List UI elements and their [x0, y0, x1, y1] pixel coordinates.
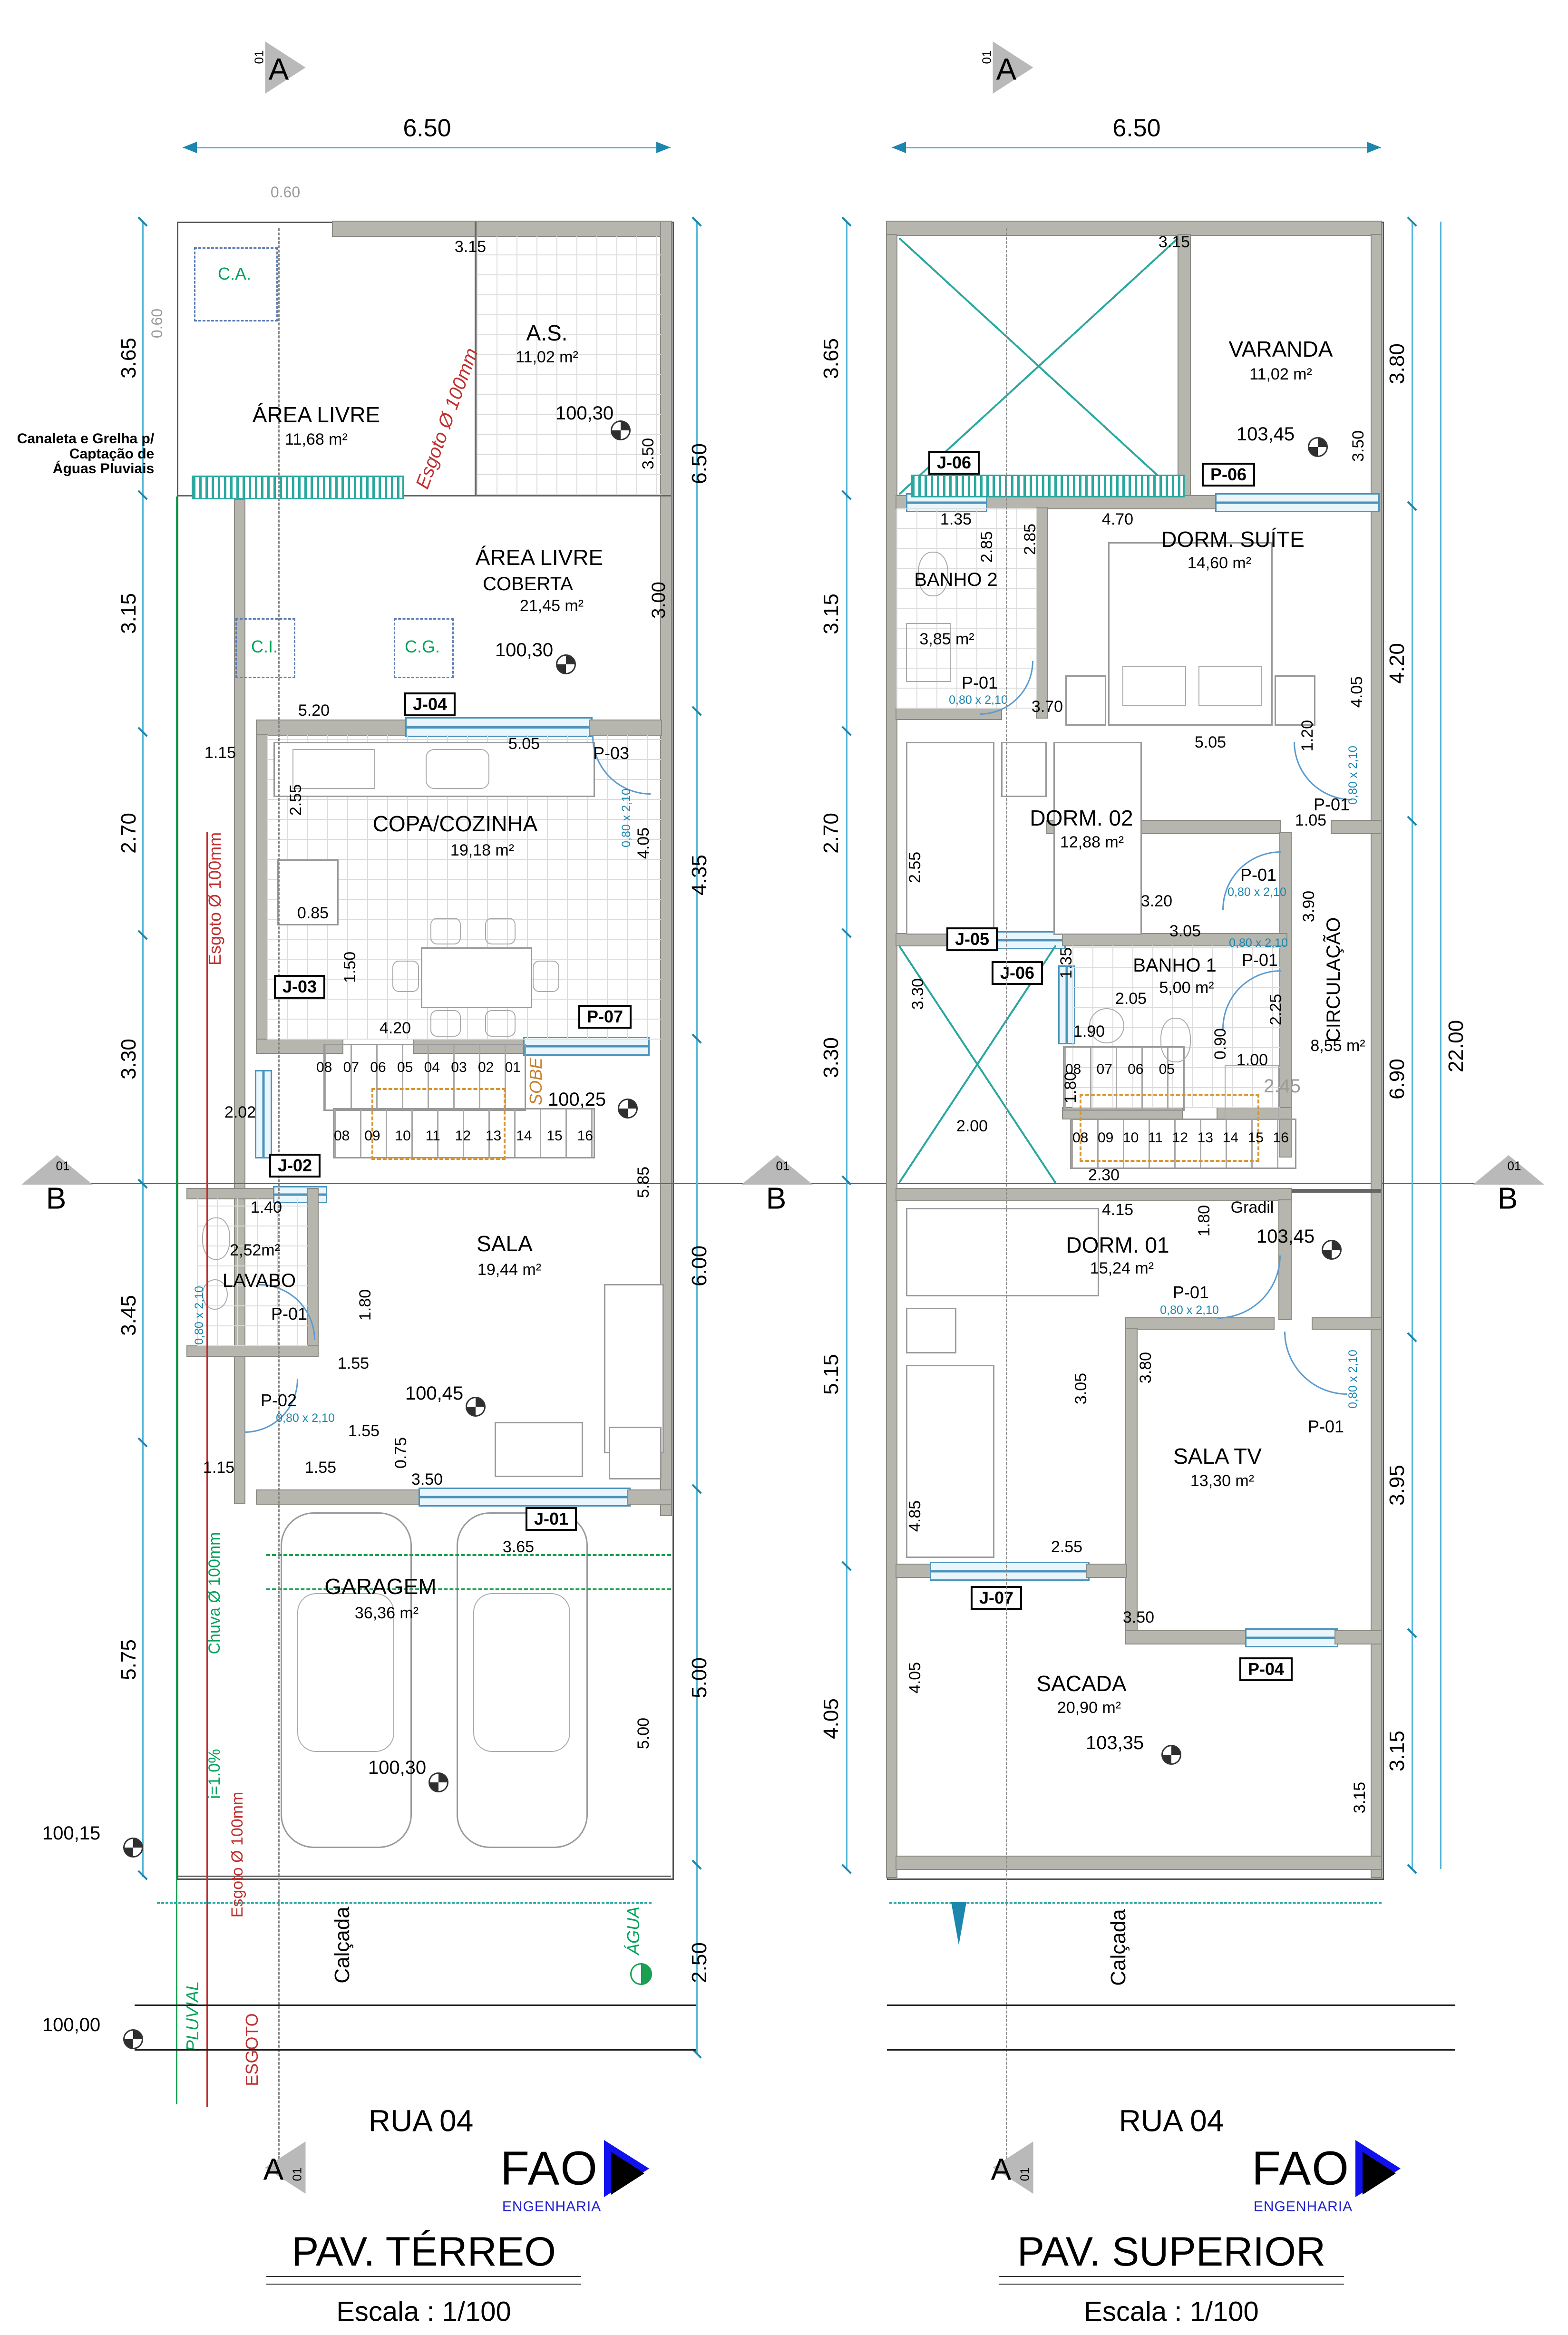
sink — [426, 749, 489, 789]
canaleta-grelha-sup — [911, 475, 1185, 497]
window-P06 — [1215, 493, 1380, 512]
dim-line — [892, 147, 1381, 148]
dim-label: 3.70 — [1032, 699, 1063, 716]
dim-label: 5.85 — [635, 1167, 653, 1198]
nightstand — [1001, 742, 1047, 797]
stair-step-number: 13 — [486, 1128, 501, 1144]
wall — [887, 222, 1381, 235]
dim-chain: 6.90 — [1386, 1059, 1408, 1099]
dim-arrow — [656, 142, 671, 153]
room-label-salatv: SALA TV — [1173, 1445, 1262, 1468]
room-label-banho2: BANHO 2 — [914, 570, 998, 590]
dim-label: 1.15 — [203, 1459, 234, 1477]
level-label: 103,35 — [1086, 1733, 1144, 1753]
dim-label: 0.75 — [393, 1437, 410, 1469]
dim-label: 3.30 — [910, 978, 927, 1010]
window-tag-J05: J-05 — [946, 927, 998, 951]
wall — [1279, 1200, 1291, 1319]
dim-label: 5.05 — [508, 736, 540, 753]
dim-arrow — [183, 142, 197, 153]
door-tag-P01: P-01 — [1242, 951, 1278, 969]
window-tag-J06: J-06 — [928, 451, 980, 475]
lot-front-line — [177, 1876, 671, 1877]
section-marker-index: 01 — [980, 50, 993, 64]
dim-line — [696, 222, 698, 2053]
stair-step-number: 16 — [1273, 1130, 1289, 1146]
dim-label: 3.05 — [1073, 1373, 1090, 1404]
dim-label: 4.15 — [1102, 1202, 1133, 1219]
dim-chain: 5.00 — [689, 1657, 711, 1698]
stair-step-number: 12 — [1172, 1130, 1188, 1146]
level-label: 103,45 — [1256, 1226, 1315, 1246]
section-marker-letter: A — [269, 53, 289, 85]
ca-box — [194, 247, 278, 321]
dim-label: 1.90 — [1073, 1023, 1105, 1041]
ci-label: C.I. — [251, 638, 278, 656]
dim-chain: 3.45 — [118, 1295, 140, 1336]
dim-label: 2.00 — [956, 1118, 988, 1135]
room-area: 8,55 m² — [1310, 1038, 1365, 1055]
nightstand — [1275, 675, 1315, 726]
wall — [333, 222, 671, 236]
dim-label: 1.50 — [342, 952, 359, 983]
stair-step-number: 07 — [343, 1060, 359, 1076]
cg-label: C.G. — [405, 638, 440, 656]
dim-chain: 3.95 — [1386, 1465, 1408, 1506]
stair-numbers-lower: 080910111213141516 — [334, 1128, 593, 1144]
room-area: 11,68 m² — [285, 431, 348, 448]
room-area: 19,44 m² — [477, 1262, 541, 1279]
dim-arrow — [892, 142, 906, 153]
logo-diamond-black-sup — [1363, 2152, 1396, 2195]
drawing-sheet: C.A. 0807060504030201 080910111213141516 — [0, 0, 1568, 2335]
dim-label: 4.20 — [380, 1020, 411, 1037]
wall — [1126, 1318, 1274, 1329]
door-tag-P01: P-01 — [962, 674, 998, 692]
room-label-circulacao: CIRCULAÇÃO — [1324, 917, 1344, 1042]
section-marker-index: 01 — [1508, 1159, 1521, 1172]
street-line — [887, 2049, 1455, 2051]
stair-step-number: 05 — [1159, 1061, 1175, 1078]
room-area: 19,18 m² — [450, 842, 514, 859]
stair-numbers-upper: 0807060504030201 — [316, 1060, 521, 1076]
section-marker-letter: B — [46, 1182, 67, 1214]
dim-chain: 2.70 — [820, 813, 842, 854]
dim-chain: 3.30 — [820, 1037, 842, 1078]
stair-step-number: 11 — [426, 1128, 440, 1144]
door-tag-P04: P-04 — [1239, 1657, 1293, 1681]
chair — [430, 1010, 461, 1037]
logo-text-sup: FAO — [1252, 2144, 1350, 2194]
stair-step-number: 04 — [424, 1060, 440, 1076]
chair — [533, 961, 559, 992]
section-marker-index: 01 — [291, 2168, 303, 2181]
dim-chain: 2.50 — [689, 1942, 711, 1983]
room-label-lavabo: LAVABO — [223, 1271, 296, 1291]
level-symbol — [618, 1099, 638, 1119]
chair — [485, 918, 516, 944]
section-marker-letter: A — [996, 53, 1017, 85]
dim-chain: 6.50 — [689, 443, 711, 484]
room-area: 13,30 m² — [1190, 1473, 1254, 1490]
room-area: 20,90 m² — [1057, 1700, 1121, 1717]
door-tag-P02: P-02 — [261, 1391, 297, 1410]
door-tag-P03: P-03 — [593, 744, 629, 762]
stair-step-number: 07 — [1097, 1061, 1112, 1078]
room-label-garagem: GARAGEM — [324, 1575, 436, 1598]
dim-chain: 3.00 — [649, 582, 669, 619]
nightstand — [906, 1308, 956, 1353]
stair-step-number: 09 — [364, 1128, 380, 1144]
door-size: 0,80 x 2,10 — [1347, 1350, 1359, 1409]
door-tag-P01: P-01 — [271, 1305, 307, 1323]
room-area: 2,52m² — [230, 1242, 280, 1259]
dim-chain: 3.65 — [118, 338, 140, 379]
dim-label: 3.20 — [1141, 893, 1172, 910]
gradil-rail — [1292, 1189, 1381, 1193]
door-size: 0,80 x 2,10 — [1160, 1304, 1219, 1316]
title-underline — [266, 2276, 581, 2277]
window-tag-J02: J-02 — [269, 1154, 321, 1177]
dim-line — [1412, 222, 1413, 1869]
esgoto-label: Esgoto Ø 100mm — [206, 832, 224, 965]
wall — [1313, 1318, 1381, 1329]
window-J03 — [255, 1070, 272, 1158]
dim-label: 5.00 — [635, 1718, 653, 1749]
dim-chain: 6.00 — [689, 1245, 711, 1286]
window-tag-J03: J-03 — [274, 975, 325, 999]
wall — [187, 1189, 273, 1198]
wall — [1178, 235, 1190, 496]
door-size: 0,80 x 2,10 — [949, 694, 1008, 706]
wall — [896, 1565, 930, 1577]
room-label-dorm01: DORM. 01 — [1066, 1234, 1169, 1256]
dim-label: 0.85 — [297, 905, 329, 922]
level-symbol — [466, 1397, 486, 1417]
nightstand — [1065, 675, 1106, 726]
dim-label: 3.15 — [1352, 1782, 1369, 1813]
stair-step-number: 02 — [478, 1060, 494, 1076]
scale-label-sup: Escala : 1/100 — [1084, 2298, 1259, 2327]
stair-step-number: 14 — [1223, 1130, 1238, 1146]
level-symbol — [1161, 1745, 1181, 1765]
pillow — [1198, 666, 1262, 706]
dim-line — [183, 147, 671, 148]
canaleta-grelha — [192, 476, 404, 499]
wall — [628, 1490, 671, 1504]
dim-label: 3.65 — [503, 1539, 534, 1556]
street-line — [135, 2004, 696, 2006]
room-label-dorm02: DORM. 02 — [1030, 807, 1133, 829]
single-bed — [906, 742, 994, 935]
window-J01 — [419, 1488, 631, 1507]
stair-dashed-outline — [371, 1088, 506, 1160]
wall — [1126, 1329, 1137, 1631]
level-label: 100,00 — [42, 2015, 100, 2035]
room-area: 3,85 m² — [919, 631, 974, 648]
room-label-sacada: SACADA — [1036, 1672, 1126, 1695]
room-label-coberta-sub: COBERTA — [483, 574, 573, 594]
slope-label: i=1.0% — [206, 1749, 224, 1799]
dim-label: 1.35 — [940, 511, 972, 528]
window-tag-J01: J-01 — [526, 1507, 577, 1531]
level-label: 100,30 — [495, 640, 553, 660]
dim-label: 3.80 — [1138, 1352, 1155, 1383]
door-size: 0,80 x 2,10 — [193, 1286, 205, 1345]
stair-step-number: 06 — [1128, 1061, 1143, 1078]
dim-chain: 5.15 — [820, 1354, 842, 1395]
dim-chain: 4.35 — [689, 855, 711, 895]
chair — [430, 918, 461, 944]
dim-label: 5.20 — [298, 702, 330, 720]
wall — [1126, 1631, 1245, 1644]
dim-label: 3.90 — [1301, 891, 1318, 922]
sobe-label: SOBE — [527, 1058, 545, 1105]
stair-step-number: 09 — [1098, 1130, 1113, 1146]
dim-label: 3.15 — [455, 239, 486, 256]
section-marker-index: 01 — [56, 1159, 70, 1172]
level-symbol — [1322, 1240, 1342, 1260]
room-label-banho1: BANHO 1 — [1133, 955, 1217, 975]
level-label: 100,45 — [405, 1383, 463, 1403]
dim-chain: 22.00 — [1445, 1020, 1467, 1072]
dim-label: 1.80 — [1196, 1205, 1213, 1236]
plan-title-terreo: PAV. TÉRREO — [292, 2230, 556, 2273]
dim-label: 1.20 — [1299, 720, 1316, 751]
title-underline — [999, 2276, 1344, 2277]
dim-label: 6.50 — [403, 116, 451, 142]
stair-step-number: 08 — [334, 1128, 350, 1144]
section-marker-index: 01 — [1018, 2168, 1031, 2181]
level-symbol — [556, 654, 576, 674]
stair-step-number: 15 — [546, 1128, 562, 1144]
room-area: 15,24 m² — [1090, 1260, 1154, 1277]
door-size: 0,80 x 2,10 — [620, 788, 633, 847]
level-label: 103,45 — [1237, 424, 1295, 444]
dim-label: 4.05 — [635, 827, 653, 859]
chuva-dashed — [266, 1554, 671, 1556]
dim-label: 4.85 — [907, 1500, 924, 1532]
window-P07 — [523, 1037, 650, 1056]
level-label: 100,30 — [368, 1758, 426, 1778]
level-label: 100,15 — [42, 1823, 100, 1843]
dim-label: 3.50 — [640, 438, 657, 469]
dining-table — [421, 947, 532, 1008]
room-area: 11,02 m² — [516, 349, 578, 366]
wall — [1332, 821, 1381, 833]
dim-label: 2.55 — [907, 852, 924, 883]
logo-subtext-sup: ENGENHARIA — [1254, 2199, 1353, 2214]
wall — [887, 235, 896, 1877]
agua-symbol — [630, 1963, 652, 1985]
dim-label: 1.05 — [1295, 812, 1326, 829]
street-name-sup: RUA 04 — [1119, 2105, 1224, 2137]
dim-label: 2.85 — [1022, 524, 1039, 555]
dim-label: 2.55 — [288, 784, 305, 816]
dim-label: 2.45 — [1264, 1076, 1301, 1096]
street-name: RUA 04 — [369, 2105, 474, 2137]
dim-label: 1.00 — [1237, 1052, 1268, 1069]
chuva-label: Chuva Ø 100mm — [206, 1532, 224, 1654]
room-label-varanda: VARANDA — [1229, 338, 1333, 360]
section-line-A — [278, 228, 280, 2159]
room-label-as: A.S. — [526, 321, 568, 344]
dim-label: 1.80 — [1062, 1072, 1080, 1103]
level-symbol — [123, 2029, 143, 2049]
street-line — [887, 2004, 1455, 2006]
room-label-sala: SALA — [477, 1232, 533, 1255]
gradil-label: Gradil — [1231, 1199, 1274, 1216]
door-tag-P07: P-07 — [578, 1005, 632, 1029]
door-tag-P01: P-01 — [1240, 866, 1276, 884]
room-label-copa: COPA/COZINHA — [373, 812, 538, 835]
dim-label: 2.05 — [1115, 991, 1147, 1008]
room-label-arealivre: ÁREA LIVRE — [253, 403, 380, 426]
window-tag-J04: J-04 — [404, 692, 456, 716]
pluvial-label: PLUVIAL — [184, 1981, 202, 2052]
dim-label: 5.05 — [1195, 734, 1226, 751]
section-marker-letter: B — [1498, 1182, 1518, 1214]
dim-chain: 3.15 — [820, 593, 842, 634]
room-area: 14,60 m² — [1188, 555, 1251, 572]
agua-label: ÁGUA — [624, 1907, 643, 1955]
title-underline — [999, 2284, 1344, 2285]
stair-step-number: 01 — [505, 1060, 521, 1076]
dim-chain: 3.15 — [1386, 1731, 1408, 1771]
title-underline — [266, 2284, 581, 2285]
door-size: 0,80 x 2,10 — [1229, 937, 1288, 949]
stair-step-number: 13 — [1198, 1130, 1213, 1146]
dim-chain: 5.75 — [118, 1639, 140, 1680]
dim-chain: 3.65 — [820, 338, 842, 379]
window-J07 — [930, 1562, 1090, 1581]
room-area: 5,00 m² — [1159, 980, 1214, 997]
section-marker-letter: A — [991, 2153, 1012, 2185]
chair — [392, 961, 419, 992]
window-J04 — [405, 717, 593, 737]
corner-unit — [609, 1427, 662, 1479]
ca-label: C.A. — [218, 265, 251, 283]
wall — [1087, 1565, 1126, 1577]
stair-step-number: 10 — [1123, 1130, 1139, 1146]
stair-step-number: 16 — [577, 1128, 593, 1144]
chair — [485, 1010, 516, 1037]
dim-label: 3.50 — [411, 1471, 443, 1489]
dim-label: 1.55 — [338, 1355, 369, 1372]
dim-chain: 4.05 — [820, 1698, 842, 1739]
dim-chain: 4.20 — [1386, 643, 1408, 684]
window-P04 — [1245, 1628, 1338, 1647]
dim-label: 1.15 — [205, 745, 236, 762]
window-tag-J06b: J-06 — [992, 961, 1043, 985]
section-line-A-sup — [1006, 228, 1007, 2159]
door-tag-P01: P-01 — [1308, 1418, 1344, 1436]
esgoto-label2: Esgoto Ø 100mm — [229, 1792, 246, 1918]
logo-diamond-black — [611, 2152, 644, 2195]
dim-label: 0.90 — [1212, 1028, 1229, 1060]
dim-label: 1.40 — [251, 1199, 282, 1216]
dim-chain: 3.30 — [118, 1039, 140, 1080]
window-tag-J07: J-07 — [971, 1586, 1022, 1610]
dim-label: 0.60 — [271, 185, 300, 201]
logo-subtext: ENGENHARIA — [502, 2199, 601, 2214]
stair-step-number: 15 — [1248, 1130, 1264, 1146]
door-tag-P01: P-01 — [1173, 1284, 1209, 1302]
stove — [292, 749, 375, 789]
dim-label: 2.30 — [1088, 1167, 1120, 1184]
dim-label: 2.85 — [979, 531, 996, 563]
stair-numbers-lower-sup: 080910111213141516 — [1072, 1130, 1289, 1146]
pillow — [1122, 666, 1186, 706]
logo-text: FAO — [500, 2144, 598, 2194]
dim-chain: 3.80 — [1386, 343, 1408, 384]
room-area: 36,36 m² — [355, 1605, 419, 1622]
wall — [257, 735, 267, 1040]
section-marker-index: 01 — [776, 1159, 790, 1172]
level-symbol — [429, 1772, 448, 1792]
plan-title-superior: PAV. SUPERIOR — [1017, 2230, 1325, 2273]
flow-arrow — [951, 1902, 966, 1945]
scale-label: Escala : 1/100 — [336, 2298, 511, 2327]
dim-label: 0.60 — [149, 309, 166, 338]
section-marker-index: 01 — [253, 50, 265, 64]
tv-rack — [495, 1422, 583, 1477]
canaleta-annotation: Canaleta e Grelha p/ Captação de Águas P… — [17, 431, 154, 477]
dim-label: 1.80 — [357, 1289, 374, 1321]
section-marker-letter: B — [766, 1182, 787, 1214]
dim-label: 6.50 — [1112, 116, 1160, 142]
stair-numbers-upper-sup: 08070605 — [1065, 1061, 1175, 1078]
stair-step-number: 14 — [516, 1128, 532, 1144]
level-symbol — [123, 1838, 143, 1858]
dim-chain: 3.15 — [118, 593, 140, 634]
dim-chain: 2.70 — [118, 813, 140, 854]
dim-label: 4.70 — [1102, 511, 1133, 528]
dim-line — [1440, 222, 1441, 1869]
street-line — [135, 2049, 696, 2051]
door-tag-P06: P-06 — [1202, 463, 1255, 486]
stair-step-number: 05 — [397, 1060, 413, 1076]
stair-step-number: 12 — [455, 1128, 471, 1144]
car-roof — [473, 1593, 570, 1752]
dim-line — [846, 222, 847, 1870]
dim-label: 2.55 — [1051, 1539, 1082, 1556]
stair-step-number: 06 — [370, 1060, 386, 1076]
room-area: 11,02 m² — [1249, 366, 1312, 383]
dim-label: 1.55 — [348, 1423, 380, 1440]
stair-step-number: 03 — [451, 1060, 467, 1076]
wall — [896, 1857, 1381, 1869]
calcada-label-sup: Calçada — [1108, 1909, 1130, 1985]
room-label-suite: DORM. SUÍTE — [1161, 528, 1305, 551]
stair-step-number: 11 — [1148, 1130, 1163, 1146]
toilet-banho1 — [1160, 1018, 1191, 1062]
calcada-label: Calçada — [331, 1907, 353, 1983]
dim-label: 1.55 — [305, 1459, 336, 1477]
room-area: 21,45 m² — [520, 598, 584, 615]
room-area: 12,88 m² — [1060, 834, 1124, 851]
wall — [1335, 1631, 1381, 1644]
wall — [590, 720, 661, 735]
level-label: 100,30 — [555, 403, 614, 423]
stair-step-number: 08 — [316, 1060, 332, 1076]
door-size: 0,80 x 2,10 — [1227, 886, 1286, 898]
pluvial-pipe — [176, 496, 177, 2104]
dim-label: 1.35 — [1058, 947, 1075, 979]
door-size: 0,80 x 2,10 — [276, 1412, 335, 1424]
dim-arrow — [1367, 142, 1381, 153]
level-symbol — [611, 420, 631, 440]
